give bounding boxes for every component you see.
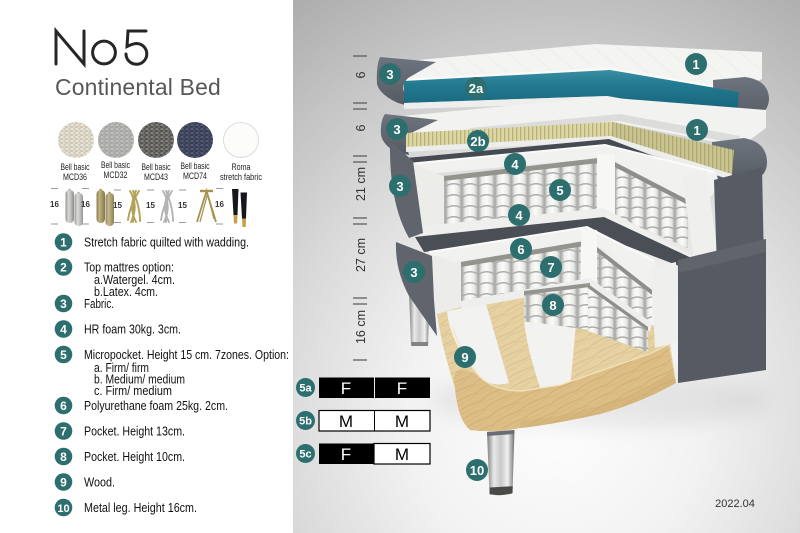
svg-text:3: 3 [396, 179, 403, 194]
svg-text:10: 10 [470, 463, 484, 478]
svg-text:5a: 5a [299, 383, 312, 395]
svg-text:Stretch fabric quilted with wa: Stretch fabric quilted with wadding. [84, 236, 249, 250]
svg-text:6: 6 [354, 71, 368, 78]
svg-text:MCD36: MCD36 [63, 172, 87, 182]
svg-text:Pocket. Height 10cm.: Pocket. Height 10cm. [84, 450, 185, 464]
svg-text:5b: 5b [299, 416, 312, 428]
svg-text:9: 9 [461, 350, 468, 365]
svg-text:2022.04: 2022.04 [715, 498, 755, 510]
svg-text:Fabric.: Fabric. [84, 297, 114, 311]
svg-text:Micropocket. Height 15 cm. 7zo: Micropocket. Height 15 cm. 7zones. Optio… [84, 348, 289, 362]
svg-text:27 cm: 27 cm [354, 238, 368, 272]
svg-text:6: 6 [354, 124, 368, 131]
svg-text:9: 9 [60, 476, 67, 490]
svg-text:Pocket. Height 13cm.: Pocket. Height 13cm. [84, 425, 185, 439]
svg-text:4: 4 [511, 157, 519, 172]
svg-text:16: 16 [81, 200, 90, 209]
svg-text:15: 15 [113, 201, 122, 210]
svg-text:3: 3 [386, 67, 393, 82]
svg-text:5: 5 [60, 348, 67, 362]
svg-text:Wood.: Wood. [84, 476, 115, 490]
svg-text:1: 1 [60, 236, 67, 250]
svg-text:6: 6 [517, 242, 524, 257]
svg-text:MCD74: MCD74 [183, 171, 207, 181]
svg-text:3: 3 [60, 297, 67, 311]
svg-text:7: 7 [60, 425, 67, 439]
svg-text:4: 4 [60, 323, 67, 337]
svg-text:4: 4 [515, 208, 523, 223]
svg-text:2b: 2b [470, 134, 485, 149]
svg-text:21 cm: 21 cm [354, 167, 368, 201]
svg-text:Bell basic: Bell basic [101, 160, 130, 170]
svg-text:Bell basic: Bell basic [142, 162, 171, 172]
svg-text:Polyurethane foam 25kg. 2cm.: Polyurethane foam 25kg. 2cm. [84, 399, 228, 413]
svg-text:8: 8 [549, 298, 556, 313]
svg-text:Bell basic: Bell basic [61, 162, 90, 172]
svg-text:16 cm: 16 cm [354, 310, 368, 344]
svg-text:8: 8 [60, 450, 67, 464]
svg-text:1: 1 [692, 57, 699, 72]
svg-text:MCD32: MCD32 [104, 170, 128, 180]
svg-text:stretch fabric: stretch fabric [220, 172, 262, 182]
svg-text:3: 3 [393, 122, 400, 137]
svg-text:5: 5 [556, 183, 563, 198]
svg-text:F: F [397, 379, 407, 398]
svg-text:15: 15 [146, 201, 155, 210]
svg-text:2: 2 [60, 261, 67, 275]
svg-text:10: 10 [57, 503, 69, 515]
svg-text:5c: 5c [299, 449, 311, 461]
svg-text:Bell basic: Bell basic [181, 161, 210, 171]
svg-text:MCD43: MCD43 [144, 172, 168, 182]
svg-text:HR foam 30kg. 3cm.: HR foam 30kg. 3cm. [84, 323, 181, 337]
svg-text:M: M [395, 445, 409, 464]
svg-text:c. Firm/ medium: c. Firm/ medium [94, 384, 172, 398]
svg-text:16: 16 [215, 200, 224, 209]
svg-text:M: M [395, 412, 409, 431]
svg-text:2a: 2a [469, 81, 484, 96]
svg-text:Continental Bed: Continental Bed [55, 74, 221, 100]
svg-text:16: 16 [50, 200, 59, 209]
svg-text:Roma: Roma [232, 162, 251, 172]
svg-text:M: M [339, 412, 353, 431]
svg-text:7: 7 [547, 260, 554, 275]
svg-text:F: F [341, 379, 351, 398]
svg-text:6: 6 [60, 399, 67, 413]
svg-text:F: F [341, 445, 351, 464]
svg-text:3: 3 [410, 265, 417, 280]
svg-text:1: 1 [693, 123, 700, 138]
svg-text:15: 15 [178, 201, 187, 210]
svg-text:Metal leg. Height 16cm.: Metal leg. Height 16cm. [84, 501, 197, 515]
